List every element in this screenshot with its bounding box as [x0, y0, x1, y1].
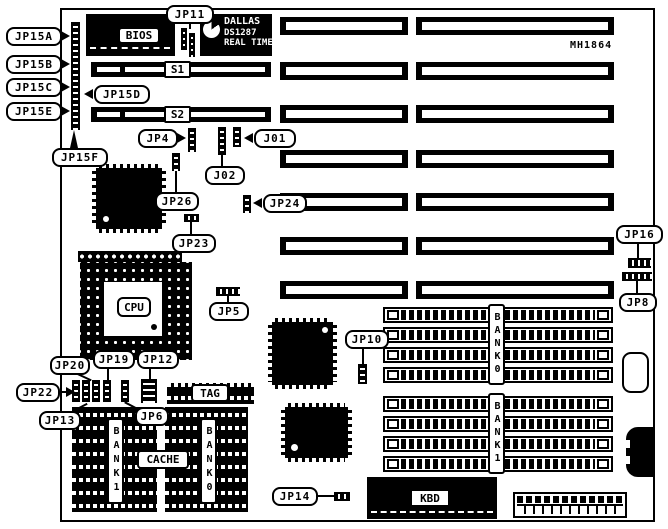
jp22-pointer [66, 387, 75, 397]
callout-jp15d: JP15D [94, 85, 150, 104]
j01-jumper [233, 127, 241, 147]
rtc-part-text: DS1287 [224, 28, 257, 38]
power-sockets-row [517, 504, 623, 514]
jp4-jumper [188, 128, 196, 152]
board-model-text: MH1864 [570, 40, 612, 51]
qfp-pins [288, 458, 345, 462]
rtc-type-text: REAL TIME [224, 38, 273, 48]
isa-slot [280, 237, 408, 255]
jp19-jumper [103, 380, 111, 402]
jp14-leader [317, 495, 334, 497]
qfp-pins [92, 171, 96, 226]
cache-label: CACHE [137, 450, 189, 469]
callout-j02: J02 [205, 166, 245, 185]
din-notch [624, 456, 630, 464]
jp15-jumper-strip [71, 22, 80, 130]
jp14-jumper [334, 492, 350, 501]
jp11-leader [189, 24, 191, 29]
callout-jp4: JP4 [138, 129, 178, 148]
callout-jp22: JP22 [16, 383, 60, 402]
callout-jp11: JP11 [166, 5, 214, 24]
bios-label: BIOS [118, 27, 160, 44]
s2-label: S2 [164, 106, 191, 123]
jp10-jumper [358, 364, 367, 384]
callout-j01: J01 [254, 129, 296, 148]
callout-jp8: JP8 [619, 293, 657, 312]
jp26-jumper [172, 153, 180, 171]
qfp-pins [99, 229, 159, 233]
callout-jp10: JP10 [345, 330, 389, 349]
jp12-leader [149, 369, 151, 379]
cache-bank0-label: BANK0 [200, 418, 217, 504]
jp23-leader [190, 222, 192, 234]
qfp-pins [99, 164, 159, 168]
callout-jp15b: JP15B [6, 55, 62, 74]
isa-slot [416, 17, 614, 35]
s1-label: S1 [164, 61, 191, 78]
pin-header [78, 251, 182, 262]
callout-jp15f: JP15F [52, 148, 108, 167]
qfp-pin1-dot [291, 444, 298, 451]
power-connector [513, 492, 627, 518]
qfp-pins [275, 385, 330, 389]
isa-slot [416, 281, 614, 299]
qfp-pins [281, 410, 285, 455]
qfp-pin1-dot [103, 216, 109, 222]
isa-slot [280, 62, 408, 80]
jp16-leader [637, 244, 639, 258]
isa-slot [416, 150, 614, 168]
jp24-pointer [253, 198, 262, 208]
s2-slot-divider [120, 111, 125, 119]
cache-bank1-label: BANK1 [107, 418, 124, 504]
motherboard-diagram: MH1864 BIOS DALLAS DS1287 REAL TIME S1 S… [0, 0, 668, 529]
jp16-jumper [628, 258, 651, 268]
battery-outline [622, 352, 649, 393]
callout-jp13: JP13 [39, 411, 81, 430]
callout-jp12: JP12 [137, 350, 179, 369]
isa-slot [416, 105, 614, 123]
callout-jp6: JP6 [135, 407, 169, 426]
jp11-jumper [189, 33, 195, 57]
simm-bank1-label: BANK1 [488, 393, 505, 474]
callout-jp20: JP20 [50, 356, 90, 375]
cpu-pin1-dot [151, 324, 157, 330]
jp19-leader [107, 369, 109, 380]
isa-slot [280, 281, 408, 299]
jp20-jumper [92, 380, 100, 402]
din-notch [624, 440, 630, 448]
isa-slot [280, 17, 408, 35]
tag-label: TAG [191, 384, 229, 402]
callout-jp14: JP14 [272, 487, 318, 506]
isa-slot [416, 62, 614, 80]
jp12-jumper-block [141, 379, 157, 403]
s1-slot-divider [120, 66, 125, 74]
jp24-jumper [243, 195, 251, 213]
jp26-leader [175, 171, 177, 192]
isa-slot [416, 193, 614, 211]
callout-jp26: JP26 [155, 192, 199, 211]
rtc-brand-text: DALLAS [224, 17, 260, 27]
qfp-pins [288, 403, 345, 407]
callout-jp15e: JP15E [6, 102, 62, 121]
callout-jp23: JP23 [172, 234, 216, 253]
jp6-jumper [121, 380, 129, 402]
jp23-jumper [184, 214, 199, 222]
qfp-pin1-dot [322, 327, 328, 333]
keyboard-din-connector [626, 427, 655, 477]
qfp-pins [348, 410, 352, 455]
j02-leader [221, 155, 223, 166]
jp4-pointer [177, 133, 186, 143]
callout-jp15c: JP15C [6, 78, 62, 97]
cpu-label: CPU [117, 297, 151, 317]
callout-jp5: JP5 [209, 302, 249, 321]
j01-pointer [244, 133, 253, 143]
callout-jp16: JP16 [616, 225, 663, 244]
jp15f-leader [70, 130, 78, 148]
jp8-jumper [622, 272, 652, 281]
callout-jp19: JP19 [93, 350, 135, 369]
j02-jumper [218, 127, 226, 155]
isa-slot [416, 237, 614, 255]
jp15b-pointer [61, 59, 70, 69]
jp13-jumper [82, 380, 90, 402]
kbd-pin-row [371, 511, 493, 513]
bios-pin-row [90, 47, 170, 49]
isa-slot [280, 150, 408, 168]
jp15a-pointer [61, 31, 70, 41]
simm-bank0-label: BANK0 [488, 304, 505, 385]
jp15e-pointer [61, 106, 70, 116]
jp15c-pointer [61, 82, 70, 92]
callout-jp15a: JP15A [6, 27, 62, 46]
qfp-pins [333, 325, 337, 382]
jp10-leader [362, 349, 364, 364]
isa-slot [280, 105, 408, 123]
jp5-jumper [216, 287, 240, 296]
jp8-leader [636, 281, 638, 293]
callout-jp24: JP24 [263, 194, 307, 213]
kbd-label: KBD [410, 489, 450, 507]
qfp-pins [275, 318, 330, 322]
qfp-pins [268, 325, 272, 382]
jp11-jumper [181, 28, 187, 50]
jp15d-pointer [84, 89, 93, 99]
power-pins-row [517, 496, 623, 503]
